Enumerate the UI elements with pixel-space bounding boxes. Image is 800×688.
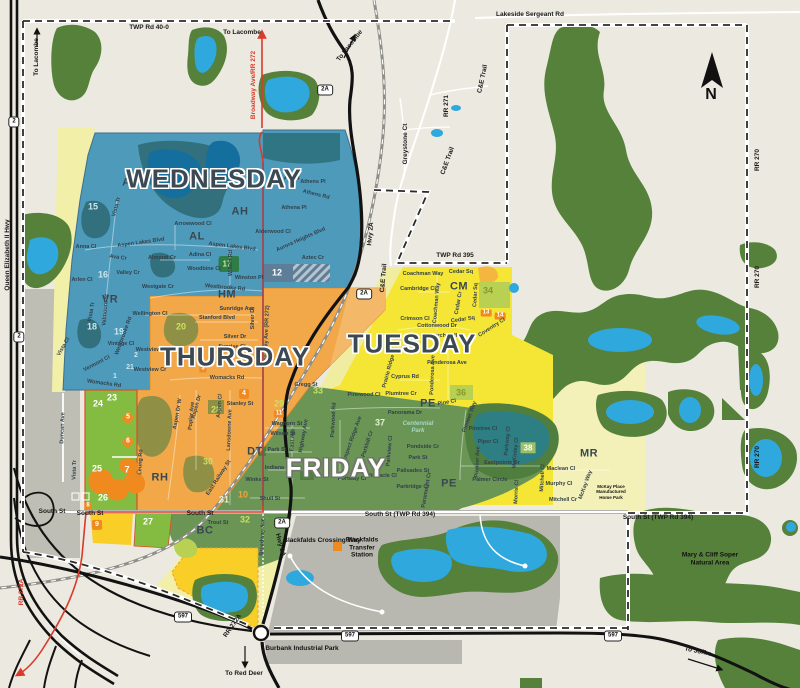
- street-label: Parkridge Cr: [396, 484, 429, 490]
- street-label: Cedar Cr: [454, 291, 464, 315]
- number-label: 7: [124, 465, 129, 476]
- street-label: Vista Tr: [71, 460, 78, 480]
- street-label: Aspen Lakes Blvd: [208, 241, 256, 253]
- street-label: Paramount Cr: [421, 472, 434, 509]
- letter-label: AH: [232, 206, 249, 219]
- number-label: 16: [98, 270, 108, 281]
- street-label: Maclean Cl: [547, 466, 576, 472]
- street-label: Pioneer Ave: [474, 446, 482, 478]
- north-label: N: [705, 86, 717, 104]
- road-label: RR 270: [754, 446, 762, 468]
- street-label: Anna Cl: [76, 244, 97, 250]
- road-label: South St: [187, 510, 214, 518]
- number-label: 38: [521, 442, 536, 453]
- number-label: 36: [456, 388, 466, 399]
- street-label: Almond Cr: [148, 255, 176, 261]
- street-label: Adina Cl: [189, 252, 211, 258]
- shield-label: 597: [341, 630, 359, 641]
- street-label: Mitchell Cr: [549, 497, 577, 503]
- number-label: 20: [176, 322, 186, 333]
- street-label: Cedar Sq: [449, 269, 473, 275]
- number-label: 15: [88, 202, 98, 213]
- road-label: RR 270: [754, 149, 762, 171]
- street-label: Crimson Cl: [400, 316, 429, 322]
- street-label: Morris Cl: [513, 480, 521, 504]
- street-label: Winston Pl: [235, 275, 263, 281]
- street-label: Wilson St: [270, 431, 295, 437]
- number-label: 8: [84, 502, 91, 509]
- street-label: Stanley St: [227, 401, 254, 407]
- street-label: Trout St: [208, 520, 229, 526]
- street-label: Coachman Way: [403, 271, 444, 277]
- direction-label: To Joffre: [684, 645, 712, 658]
- number-label: 18: [87, 322, 97, 333]
- street-label: Vista Cl: [56, 337, 72, 358]
- street-label: Vintage Cl: [108, 341, 135, 347]
- street-label: Arrowwood Cl: [174, 221, 211, 227]
- street-label: Athens Rd: [302, 189, 330, 202]
- street-label: Vermont Cl: [83, 354, 112, 373]
- number-label: 6: [122, 436, 135, 449]
- zone-label-thursday: THURSDAY: [160, 342, 310, 373]
- number-label: 24: [93, 399, 103, 410]
- road-label: South St (TWP Rd 394): [365, 511, 435, 519]
- letter-label: RH: [152, 472, 169, 485]
- letter-label: PE: [441, 478, 457, 491]
- street-label: Parkway Cl: [503, 426, 512, 456]
- street-label: Cambridge Cl: [400, 286, 436, 292]
- street-label: Pondside Cr: [407, 444, 439, 450]
- street-label: Westbrooke Rd: [114, 316, 134, 356]
- street-label: Palmer Circle: [472, 477, 507, 483]
- number-label: 2: [134, 352, 138, 360]
- street-label: Willow Rd: [228, 250, 234, 276]
- road-label: TWP Rd 395: [436, 252, 473, 260]
- direction-label: To Lacombe: [223, 29, 261, 37]
- shield-label: 597: [604, 630, 622, 641]
- street-label: Vista Tr: [87, 302, 97, 323]
- street-label: Pinetree Cl: [469, 426, 498, 432]
- place-label: Blackfalds Crossing Way: [283, 537, 360, 545]
- street-label: Westbrooke Rd: [205, 283, 246, 293]
- street-label: Cedar Sq: [451, 315, 476, 325]
- zone-label-friday: FRIDAY: [286, 453, 386, 484]
- street-label: Park St: [268, 447, 287, 453]
- street-label: Cedar Sq: [472, 283, 480, 307]
- road-label: C&E Trail: [379, 263, 389, 292]
- letter-label: BC: [197, 525, 214, 538]
- zone-label-tuesday: TUESDAY: [348, 329, 477, 360]
- road-label: Greystone Ct: [402, 124, 410, 165]
- street-label: Arlen Cl: [71, 277, 92, 283]
- road-label: Hwy 2A: [273, 533, 286, 558]
- street-label: McKay Way: [578, 470, 594, 501]
- street-label: Wellington Cl: [132, 311, 167, 317]
- number-label: 4: [239, 389, 249, 399]
- letter-label: PE: [420, 398, 436, 411]
- street-label: East Railway St: [205, 459, 233, 497]
- road-label: C&E Trail: [476, 64, 489, 94]
- number-label: 23: [107, 393, 117, 404]
- number-label: 10: [238, 490, 248, 501]
- number-label: 14: [495, 312, 506, 319]
- shield-label: 597: [174, 611, 192, 622]
- street-label: Silver Dr: [250, 307, 256, 330]
- number-label: 32: [240, 515, 250, 526]
- street-label: McKinley Cl: [511, 437, 520, 469]
- street-label: Cyprus Rd: [391, 374, 419, 380]
- street-label: Alderwood Cl: [255, 229, 290, 235]
- road-label: RR 270: [754, 266, 762, 288]
- place-label: Mary & Cliff Soper Natural Area: [682, 551, 738, 566]
- road-label: RR 272A: [18, 579, 26, 606]
- street-label: Pine Cl: [437, 398, 456, 408]
- street-label: Panorama Dr: [388, 410, 422, 416]
- street-label: Shull St: [260, 496, 280, 502]
- number-label: 26: [98, 493, 108, 504]
- road-label: South St: [39, 508, 66, 516]
- street-label: Aspen Lakes Blvd: [117, 236, 165, 249]
- road-label: TWP Rd 40-0: [129, 24, 169, 32]
- road-label: C&E Trail: [439, 146, 456, 176]
- street-label: Aurora Heights Blvd: [275, 226, 326, 254]
- road-label: South St (TWP Rd 394): [623, 514, 693, 522]
- street-label: Park St: [409, 455, 428, 461]
- street-label: Aspen Dr W: [172, 398, 184, 430]
- number-label: 5: [122, 412, 135, 425]
- street-label: Woodbine Cl: [187, 266, 221, 272]
- street-label: Waghorn St: [272, 421, 303, 427]
- number-label: 25: [92, 464, 102, 475]
- direction-label: To Lacombe: [335, 29, 364, 64]
- number-label: 31: [219, 495, 229, 506]
- street-label: Poplar Ave: [188, 402, 197, 431]
- number-label: 34: [483, 286, 493, 297]
- map-canvas: ALAHAHALVRHMCMPEPEDTRHBCMR15161819221117…: [0, 0, 800, 688]
- number-label: 29: [274, 399, 284, 410]
- street-label: Womacks Rd: [210, 375, 244, 381]
- shield-label: 2: [13, 331, 24, 342]
- shield-label: 2A: [356, 288, 372, 299]
- street-label: Womacks Rd: [86, 378, 121, 389]
- street-label: Lansdowne Ave: [226, 409, 234, 451]
- number-label: 17: [219, 258, 236, 269]
- street-label: Parkview Cl: [385, 435, 394, 466]
- place-label: Burbank Industrial Park: [265, 645, 338, 653]
- street-label: Athens Pl: [300, 179, 325, 185]
- street-label: Valmount St: [101, 294, 110, 326]
- road-label: RR 271: [443, 95, 451, 117]
- street-label: Palisades St: [397, 468, 429, 474]
- shield-label: 2: [8, 116, 19, 127]
- street-label: Sunridge Ave: [219, 306, 254, 312]
- letter-label: HM: [218, 289, 236, 302]
- number-label: 12: [272, 268, 282, 279]
- place-label: Blackfalds Transfer Station: [346, 537, 379, 560]
- letter-label: VR: [102, 294, 118, 307]
- street-label: Ponderosa Ave: [427, 360, 467, 366]
- road-label: South St: [77, 510, 104, 518]
- street-label: Winks St: [245, 477, 268, 483]
- street-label: Piper Cl: [478, 439, 499, 445]
- letter-label: MR: [580, 448, 598, 461]
- street-label: Parkwood Rd: [330, 402, 338, 437]
- number-label: 33: [313, 386, 323, 397]
- street-label: Gregg St: [294, 382, 317, 388]
- number-label: 37: [375, 418, 385, 429]
- road-label: RR 272A: [222, 613, 244, 639]
- street-label: Eastpointe Dr: [484, 460, 520, 466]
- street-label: East Ave: [289, 428, 297, 451]
- street-label: Vista Tr: [111, 197, 122, 218]
- street-label: Highway Ave: [298, 419, 310, 453]
- shield-label: 2A: [317, 84, 333, 95]
- place-label: Centennial Park: [403, 421, 434, 435]
- street-label: Coventry Cl: [477, 317, 506, 339]
- letter-label: DT: [247, 446, 263, 459]
- street-label: Leung Rd: [137, 449, 145, 475]
- street-label: Murphy Cl: [546, 481, 573, 487]
- number-label: 28: [211, 405, 221, 416]
- number-label: 30: [203, 457, 213, 468]
- street-label: Stanford Blvd: [199, 315, 235, 321]
- street-label: Duncan Ave: [59, 412, 67, 444]
- place-label: McKay Place Manufactured Home Park: [596, 484, 626, 500]
- letter-label: AL: [189, 231, 205, 244]
- number-label: 21: [126, 364, 134, 372]
- street-label: Aztec Cr: [302, 255, 324, 261]
- number-label: 9: [92, 520, 102, 530]
- street-label: Aspen Dr: [191, 394, 204, 419]
- street-label: Silver Dr: [224, 334, 247, 340]
- street-label: Ava Cr: [109, 254, 127, 263]
- street-label: Westgate Cr: [142, 284, 174, 290]
- street-label: Athena Pl: [281, 205, 306, 211]
- road-label: Broadway Ave/RR 272: [250, 51, 258, 119]
- direction-label: To Lacombe: [33, 38, 41, 76]
- road-label: Hwy 2A: [366, 222, 376, 246]
- street-label: Mitchell Cl: [539, 464, 547, 492]
- street-label: Plumtree Cr: [385, 391, 416, 397]
- street-label: Pioneer Way: [461, 400, 478, 433]
- street-label: Valley Cr: [116, 270, 139, 276]
- number-label: 13: [481, 309, 492, 316]
- street-label: Coachman Way: [432, 282, 442, 323]
- number-label: 1: [113, 373, 117, 381]
- road-label: Queen Elizabeth II Hwy: [4, 219, 12, 290]
- road-label: Lakeside Sergeant Rd: [496, 11, 564, 19]
- street-label: Ponderosa Ave: [429, 355, 437, 395]
- street-label: Aspen Cl: [216, 394, 225, 418]
- street-label: Pinewood Cl: [348, 392, 381, 398]
- zone-label-wednesday: WEDNESDAY: [126, 164, 302, 195]
- letter-label: CM: [450, 281, 468, 294]
- direction-label: To Red Deer: [225, 670, 263, 678]
- number-label: 11: [274, 410, 284, 417]
- shield-label: 2A: [274, 517, 290, 528]
- street-label: Broadway Ave: [259, 518, 267, 556]
- number-label: 27: [143, 517, 153, 528]
- number-label: 19: [114, 327, 124, 338]
